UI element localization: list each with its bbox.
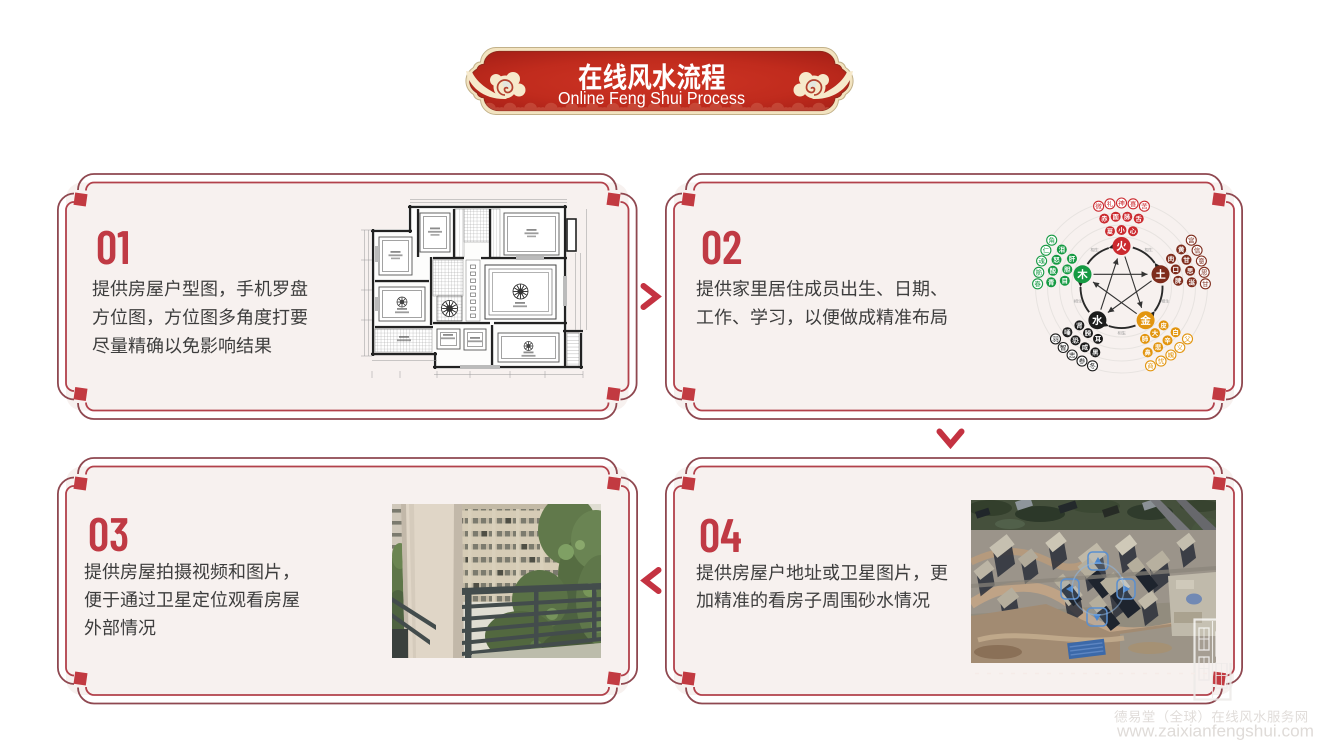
svg-text:www.zaixianfengshui.com: www.zaixianfengshui.com xyxy=(1116,722,1314,741)
svg-text:Online Feng Shui Process: Online Feng Shui Process xyxy=(558,88,745,108)
